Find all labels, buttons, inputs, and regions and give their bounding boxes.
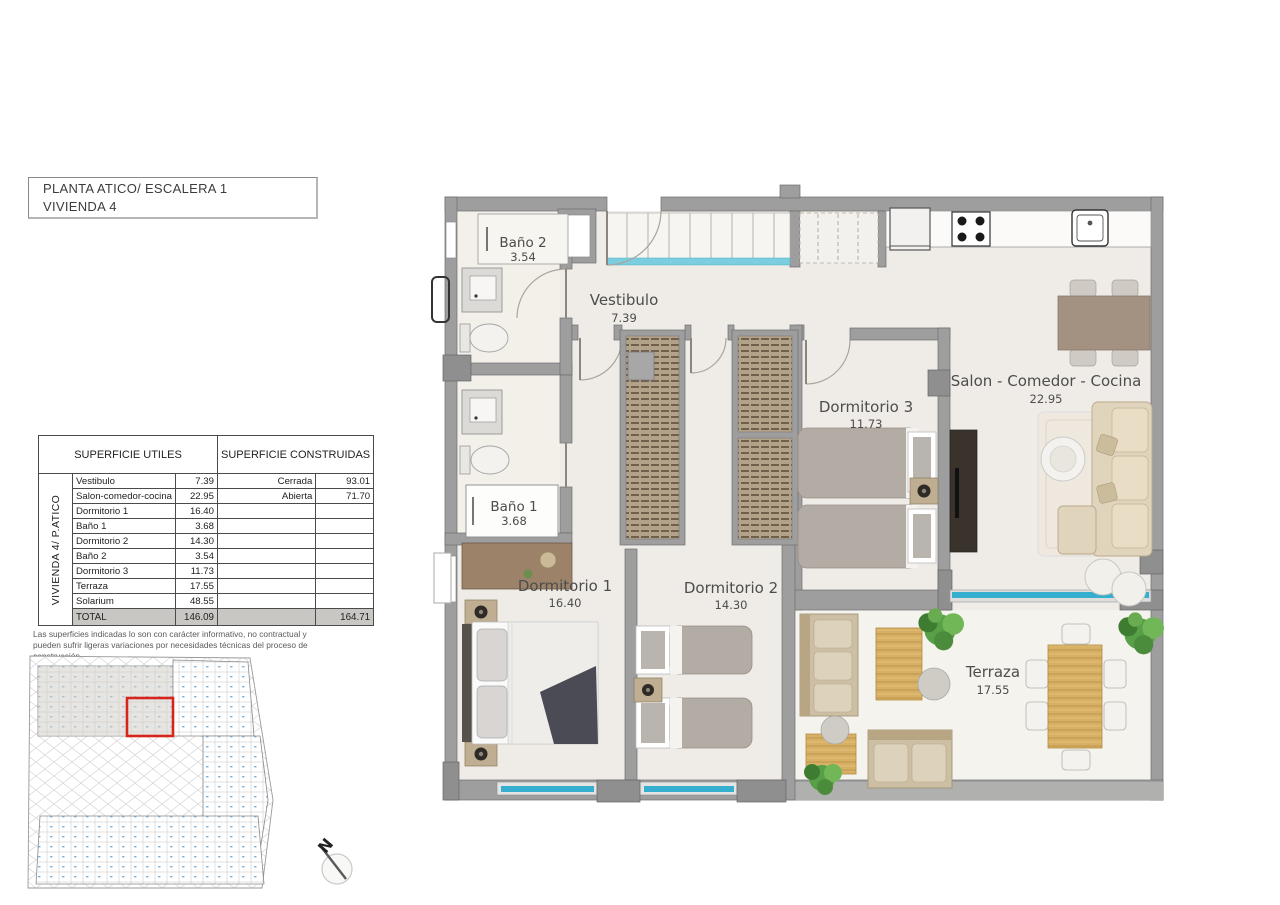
label-vestibulo: Vestibulo xyxy=(590,291,659,309)
window-glass xyxy=(501,786,594,792)
area-dormitorio1: 16.40 xyxy=(549,596,582,610)
area-terraza: 17.55 xyxy=(977,683,1010,697)
area-salon: 22.95 xyxy=(1030,392,1063,406)
single-bed xyxy=(798,428,918,498)
pouf xyxy=(1112,572,1146,606)
area-dormitorio3: 11.73 xyxy=(850,417,883,431)
single-bed xyxy=(670,626,752,674)
outdoor-dining-table xyxy=(1048,645,1102,748)
north-compass: N xyxy=(314,834,352,884)
site-wing-bottom xyxy=(36,816,264,884)
cooktop xyxy=(952,212,990,246)
drawing-layer: N xyxy=(0,0,1280,905)
bed-headboard xyxy=(462,624,472,742)
dormitorio1-furniture xyxy=(462,600,598,766)
page: PLANTA ATICO/ ESCALERA 1 VIVIENDA 4 SUPE… xyxy=(0,0,1280,905)
dining-table xyxy=(1058,296,1150,350)
label-bano2: Baño 2 xyxy=(499,235,546,251)
label-dormitorio1: Dormitorio 1 xyxy=(518,577,612,595)
safe-box xyxy=(628,352,654,380)
staircase xyxy=(607,213,878,265)
side-table xyxy=(918,668,950,700)
window-glass xyxy=(644,786,734,792)
bathroom1-fixtures xyxy=(460,390,509,474)
toilet xyxy=(471,446,509,474)
outdoor-coffee-table xyxy=(876,628,922,700)
kitchen xyxy=(886,208,1151,250)
toilet xyxy=(470,324,508,352)
floor-plan: Baño 2 3.54 Vestibulo 7.39 Baño 1 3.68 D… xyxy=(432,185,1164,802)
label-bano1: Baño 1 xyxy=(490,499,537,515)
fridge xyxy=(890,208,930,250)
area-bano2: 3.54 xyxy=(510,250,536,264)
area-bano1: 3.68 xyxy=(501,514,527,528)
single-bed xyxy=(798,505,918,568)
area-dormitorio2: 14.30 xyxy=(715,598,748,612)
tv-unit xyxy=(950,430,977,552)
label-dormitorio3: Dormitorio 3 xyxy=(819,398,913,416)
label-terraza: Terraza xyxy=(965,663,1020,681)
label-salon: Salon - Comedor - Cocina xyxy=(951,372,1142,390)
site-plan-thumbnail xyxy=(28,656,273,888)
bathroom2-fixtures xyxy=(460,268,508,352)
area-vestibulo: 7.39 xyxy=(611,311,637,325)
label-dormitorio2: Dormitorio 2 xyxy=(684,579,778,597)
compass-north-label: N xyxy=(314,834,337,856)
single-bed xyxy=(670,698,752,748)
dormitorio3-furniture xyxy=(798,428,938,568)
sofa-chaise xyxy=(1058,506,1096,554)
